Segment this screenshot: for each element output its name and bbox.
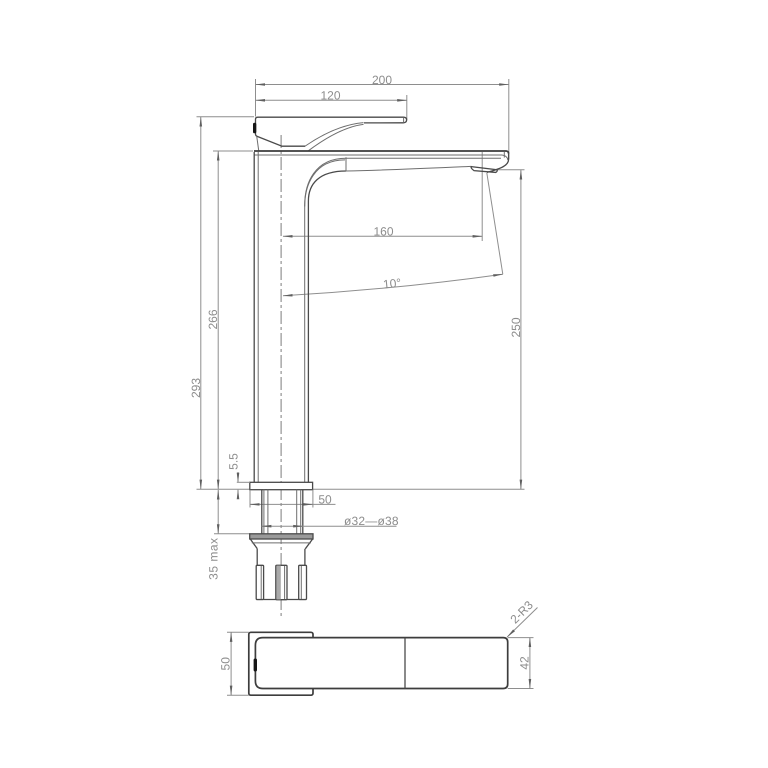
svg-text:50: 50	[219, 657, 233, 671]
svg-text:266: 266	[206, 309, 220, 329]
svg-text:50: 50	[318, 493, 332, 507]
svg-text:120: 120	[320, 89, 340, 103]
svg-text:10°: 10°	[382, 276, 402, 292]
svg-text:35 max: 35 max	[207, 538, 221, 580]
svg-text:293: 293	[189, 378, 203, 398]
svg-text:250: 250	[509, 317, 523, 337]
svg-text:ø32—ø38: ø32—ø38	[344, 514, 399, 528]
svg-text:160: 160	[373, 225, 393, 239]
svg-text:200: 200	[372, 73, 392, 87]
svg-text:2-R3: 2-R3	[508, 598, 537, 627]
svg-text:5.5: 5.5	[226, 453, 240, 470]
svg-text:42: 42	[518, 656, 532, 670]
